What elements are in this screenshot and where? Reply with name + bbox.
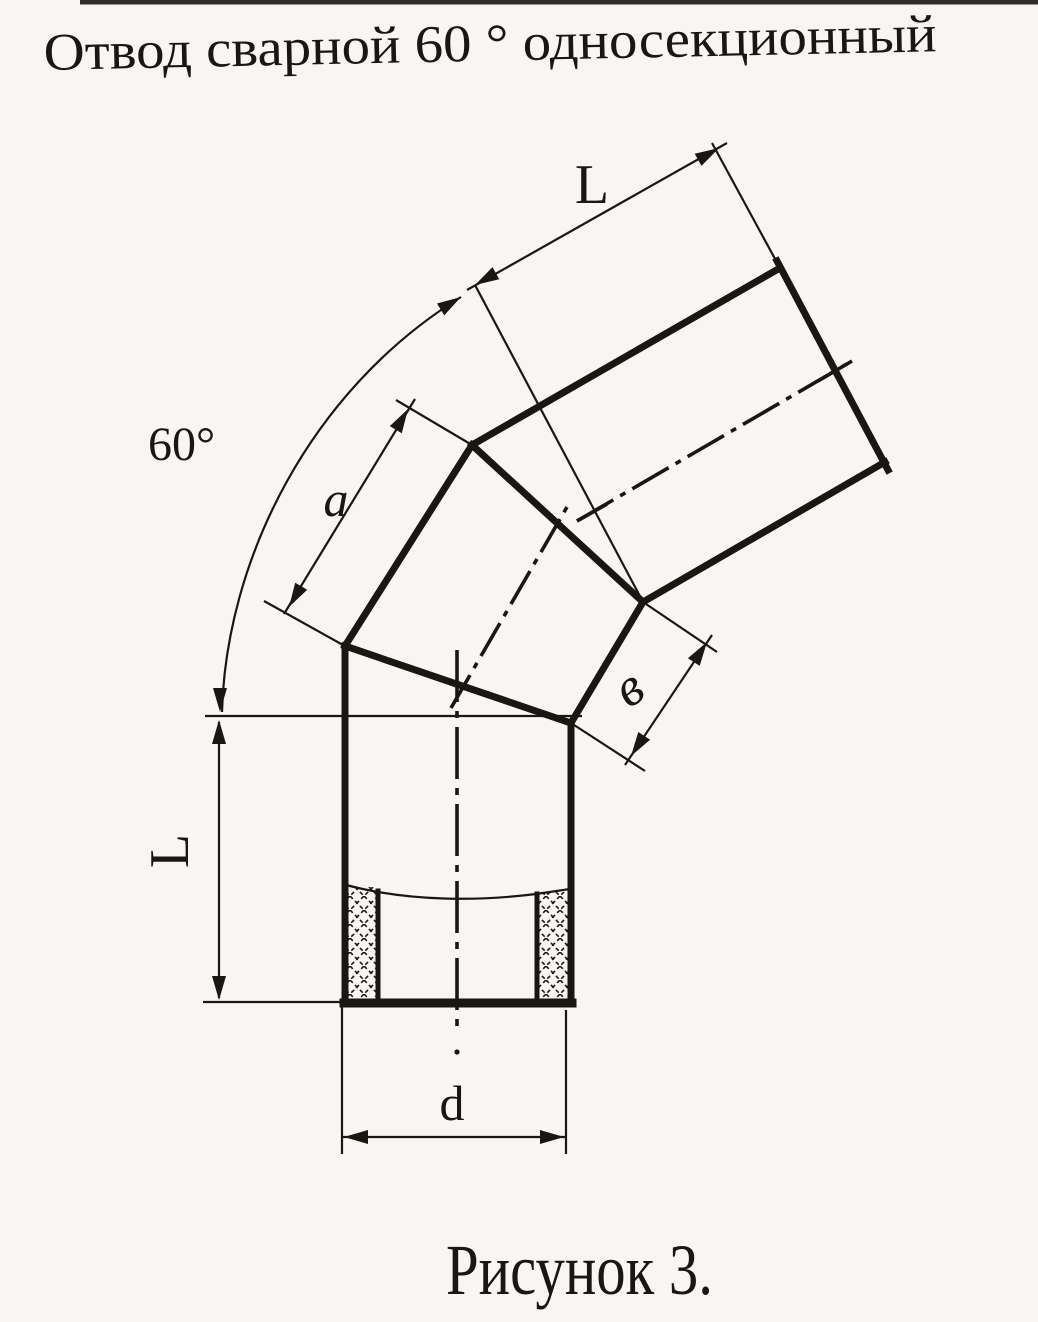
dim-line — [284, 399, 415, 614]
dim-arrow-bottom — [212, 976, 226, 1000]
centerline-middle — [451, 507, 567, 708]
label-section-edge: a — [324, 471, 349, 527]
extension-line-far — [712, 143, 780, 268]
pipe-middle-section — [345, 445, 643, 723]
dim-arrow-upper — [390, 409, 408, 433]
extension-line-upper — [396, 400, 472, 445]
label-segment-length-left: L — [139, 834, 201, 868]
pipe-top-section — [472, 261, 888, 602]
centerline-top — [577, 361, 852, 521]
arc-arrow-top — [437, 297, 461, 315]
label-section-end-width: в — [602, 656, 654, 719]
scanned-page: Отвод сварной 60 ° односекционный — [0, 0, 1038, 1317]
label-bend-angle: 60° — [148, 418, 215, 471]
weld-socket-hatch-right — [538, 892, 569, 1001]
figure-caption: Рисунок 3. — [446, 1230, 713, 1310]
scan-artifact-top-strip — [80, 0, 1038, 5]
dim-arrow-top — [212, 720, 226, 744]
dim-arrow-right — [540, 1130, 564, 1144]
dim-arrow-lower — [631, 732, 650, 756]
dim-arrow-upper — [688, 642, 707, 666]
dim-arrow-lower — [289, 583, 307, 607]
label-segment-length-top: L — [575, 154, 609, 216]
dim-arrow-left — [344, 1130, 368, 1144]
weld-socket-hatch-left — [347, 887, 377, 1001]
dim-arrow-near — [475, 267, 499, 285]
label-pipe-diameter: d — [440, 1075, 465, 1131]
extension-line-lower — [264, 601, 343, 645]
dimension-d: d — [342, 1007, 566, 1154]
centerline-dot — [454, 1049, 459, 1054]
extension-line-near — [475, 285, 643, 602]
angle-arc-dimension: 60° — [148, 297, 461, 712]
drawing-title: Отвод сварной 60 ° односекционный — [43, 5, 937, 82]
dimension-L-top: L — [467, 143, 780, 602]
arc-arrow-bottom — [213, 688, 227, 712]
dim-arrow-far — [695, 148, 719, 166]
elbow-technical-drawing: Отвод сварной 60 ° односекционный — [0, 0, 1038, 1317]
